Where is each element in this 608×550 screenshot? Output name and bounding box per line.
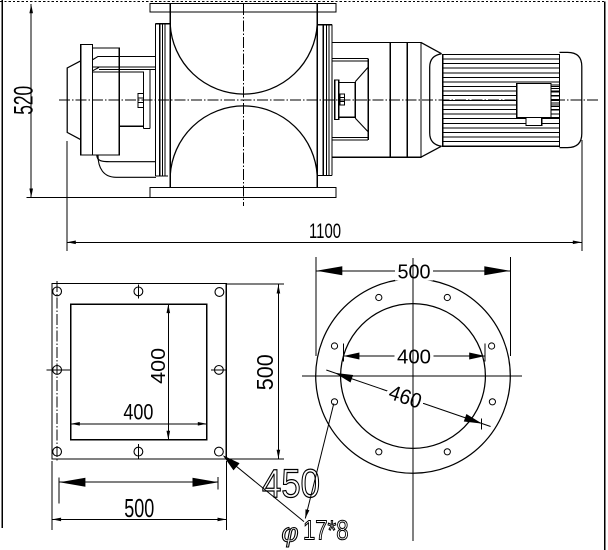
svg-text:500: 500 [398,262,431,284]
svg-text:1100: 1100 [309,220,341,243]
svg-text:400: 400 [148,348,170,384]
svg-text:520: 520 [8,86,38,115]
svg-text:400: 400 [123,399,153,424]
svg-text:400: 400 [397,346,431,368]
svg-text:450: 450 [262,462,320,506]
svg-text:17*8: 17*8 [303,515,349,546]
svg-text:500: 500 [124,493,154,523]
svg-text:φ: φ [282,518,299,548]
svg-text:500: 500 [252,354,278,390]
